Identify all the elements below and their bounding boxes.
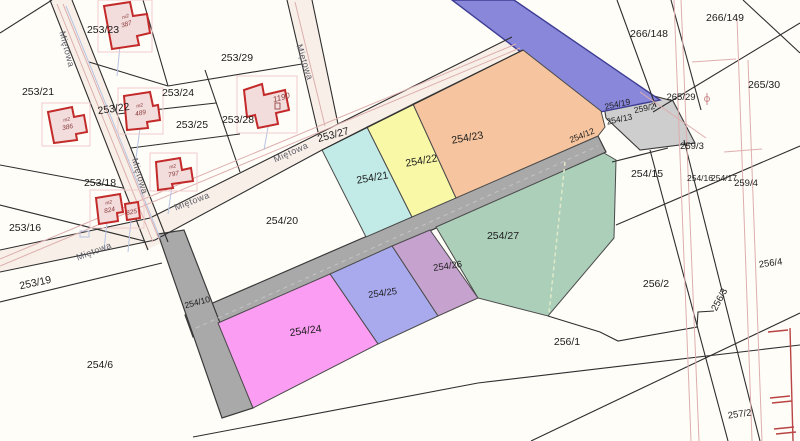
parcel-label-254-15: 254/15 (631, 168, 663, 180)
parcel-label-253-18: 253/18 (84, 177, 116, 189)
utility-pole-symbol (705, 93, 710, 105)
parcel-label-265-29: 265/29 (666, 92, 695, 103)
parcel-label-253-16: 253/16 (9, 222, 41, 234)
parcel-label-266-148: 266/148 (630, 28, 668, 40)
parcel-label-253-23: 253/23 (87, 24, 119, 36)
parcel-label-254-16: 254/16 (687, 173, 713, 183)
cadastral-map-canvas: m2 387 m2 386 m2 489 1190 m2 824 825 m2 … (0, 0, 800, 441)
parcel-label-259-4: 259/4 (734, 178, 758, 189)
parcel-label-253-29: 253/29 (221, 52, 253, 64)
road-mietowa-east (287, 0, 338, 132)
parcel-label-253-24: 253/24 (162, 87, 194, 99)
parcel-label-256-2: 256/2 (643, 278, 669, 290)
parcel-label-253-28: 253/28 (222, 114, 254, 126)
parcel-label-256-1: 256/1 (554, 336, 580, 348)
parcel-label-256-4: 256/4 (758, 256, 783, 270)
parcel-label-254-6: 254/6 (87, 359, 113, 371)
parcel-label-253-25: 253/25 (176, 119, 208, 131)
parcel-label-257-2: 257/2 (727, 407, 752, 421)
parcel-label-253-19: 253/19 (18, 274, 52, 292)
parcel-label-253-21: 253/21 (22, 86, 54, 98)
parcel-label-266-149: 266/149 (706, 12, 744, 24)
parcel-label-254-20: 254/20 (266, 215, 298, 227)
parcel-label-259-3: 259/3 (680, 141, 704, 152)
parcel-label-254-27: 254/27 (487, 230, 519, 242)
parcel-label-265-30: 265/30 (748, 79, 780, 91)
